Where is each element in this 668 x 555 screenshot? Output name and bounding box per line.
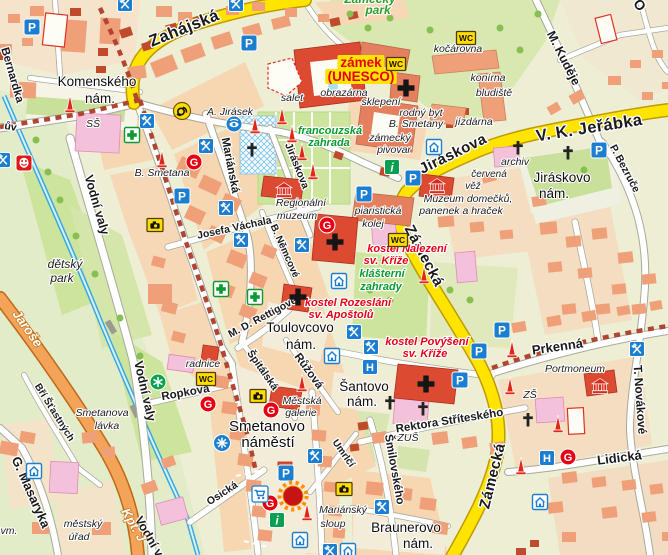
- camera-icon[interactable]: [147, 219, 163, 232]
- restaurant-icon[interactable]: [234, 233, 249, 248]
- place-label: Jiráskovo: [533, 170, 590, 185]
- tree: [137, 353, 144, 360]
- parking-icon[interactable]: [591, 142, 607, 158]
- building: [357, 421, 368, 430]
- tree: [33, 137, 40, 144]
- place-label: Smetanovo: [229, 418, 305, 435]
- wc-icon[interactable]: [457, 32, 476, 45]
- building: [662, 532, 668, 541]
- poi-label: věž: [465, 181, 481, 192]
- parking-icon[interactable]: [405, 170, 421, 186]
- city-map-canvas[interactable]: P WC H i G: [0, 0, 668, 555]
- castle-label: (UNESCO): [328, 69, 395, 84]
- building: [70, 8, 81, 16]
- restaurant-icon[interactable]: [0, 153, 11, 168]
- building: [419, 497, 437, 511]
- building: [632, 303, 647, 314]
- building: [148, 284, 172, 304]
- building: [318, 14, 329, 22]
- poi-label: kolej: [362, 218, 384, 230]
- building: [98, 48, 108, 56]
- restaurant-icon[interactable]: [118, 0, 133, 12]
- building: [49, 461, 79, 493]
- guesthouse-icon[interactable]: [341, 544, 356, 555]
- street-label: ův: [3, 120, 17, 134]
- tree: [497, 25, 504, 32]
- tree: [467, 297, 474, 304]
- restaurant-icon[interactable]: [347, 325, 362, 340]
- tree: [517, 47, 524, 54]
- post-office-icon[interactable]: [174, 103, 191, 120]
- building: [365, 481, 383, 496]
- information-icon[interactable]: [270, 513, 285, 528]
- place-label: Toulovcovo: [266, 320, 334, 335]
- tree: [347, 11, 354, 18]
- building: [617, 251, 633, 264]
- poi-label: radnice: [186, 358, 221, 370]
- poi-label: konírna: [470, 72, 505, 84]
- poi-label: červená: [471, 169, 507, 180]
- restaurant-icon[interactable]: [323, 544, 338, 555]
- building: [8, 14, 20, 23]
- place-label: nám.: [85, 91, 115, 106]
- building: [562, 532, 576, 542]
- building: [596, 303, 611, 314]
- building: [324, 481, 338, 492]
- supermarket-icon[interactable]: [252, 486, 268, 502]
- hotel-icon[interactable]: [363, 360, 378, 375]
- tree: [365, 25, 372, 32]
- building: [221, 401, 238, 415]
- place-label: Braunerovo: [371, 520, 441, 535]
- poi-label: ZŠ: [522, 388, 536, 401]
- building: [649, 483, 663, 495]
- place-label: nám.: [347, 394, 377, 409]
- parking-icon[interactable]: [278, 465, 294, 481]
- poi-label: panenek a hraček: [418, 205, 503, 217]
- building: [438, 215, 455, 227]
- tree: [73, 233, 80, 240]
- poi-label: Smetanova: [75, 407, 128, 419]
- poi-label: Muzeum domečků,: [424, 193, 513, 205]
- building: [252, 2, 265, 11]
- garden-label: zahrady: [359, 281, 402, 293]
- guesthouse-icon[interactable]: [427, 140, 442, 155]
- place-label: Šantovo: [339, 379, 389, 394]
- poi-label: salet: [281, 92, 304, 104]
- building: [470, 221, 485, 232]
- restaurant-icon[interactable]: [229, 0, 244, 12]
- poi-label: bludiště: [476, 87, 512, 99]
- restaurant-icon[interactable]: [308, 449, 323, 464]
- restaurant-icon[interactable]: [219, 201, 234, 216]
- poi-label: SŠ: [86, 117, 100, 130]
- guesthouse-icon[interactable]: [325, 349, 340, 364]
- building: [535, 397, 565, 423]
- poi-label: ZUŠ: [397, 431, 419, 444]
- camera-icon[interactable]: [250, 390, 266, 403]
- building: [461, 436, 477, 449]
- building: [548, 261, 563, 272]
- poi-label: dětský: [48, 257, 84, 271]
- parking-icon[interactable]: [24, 19, 40, 35]
- gallery-icon[interactable]: [186, 154, 202, 170]
- hotel-icon[interactable]: [540, 451, 555, 466]
- building: [312, 429, 327, 441]
- guesthouse-icon[interactable]: [332, 274, 347, 289]
- building: [500, 229, 514, 239]
- building: [350, 443, 360, 451]
- sight-label: sv. Kříže: [364, 255, 409, 267]
- poi-label: Městská: [282, 395, 321, 407]
- poi-label: B. Smetany: [389, 118, 444, 130]
- wc-icon[interactable]: [389, 234, 408, 247]
- building: [22, 38, 33, 46]
- poi-label: archiv: [501, 156, 530, 168]
- building: [30, 6, 44, 16]
- poi-label: piaristická: [354, 205, 402, 217]
- tree: [45, 169, 52, 176]
- parking-icon[interactable]: [356, 186, 372, 202]
- building: [662, 82, 668, 89]
- place-label: Komenského: [58, 74, 137, 89]
- building: [530, 540, 539, 547]
- information-icon[interactable]: [385, 160, 400, 175]
- poi-label: úřad: [68, 531, 90, 543]
- castle-label: zámek: [340, 55, 382, 70]
- tree: [427, 27, 434, 34]
- gallery-icon[interactable]: [319, 217, 335, 233]
- building: [547, 501, 563, 514]
- building: [102, 446, 116, 457]
- building: [565, 235, 581, 248]
- poi-label: Mariánský: [319, 504, 368, 516]
- camera-icon[interactable]: [336, 483, 352, 496]
- place-label: nám.: [403, 536, 433, 551]
- building: [630, 60, 641, 68]
- building: [561, 471, 577, 484]
- building: [652, 50, 663, 58]
- poi-label: vm.: [1, 525, 18, 537]
- sight-label: sv. Kříže: [403, 348, 448, 360]
- garden-label: francouzská: [298, 125, 362, 137]
- poi-label: městský: [64, 518, 103, 530]
- building: [591, 227, 607, 240]
- place-label: nám.: [286, 337, 316, 352]
- pharmacy-icon[interactable]: [214, 282, 229, 297]
- place-label: nám.: [539, 186, 569, 201]
- restaurant-icon[interactable]: [375, 500, 390, 515]
- fountain-icon[interactable]: [214, 435, 231, 452]
- parking-icon[interactable]: [494, 322, 510, 338]
- garden-label: zahrada: [307, 137, 350, 149]
- tree: [57, 197, 64, 204]
- wc-icon[interactable]: [387, 58, 406, 71]
- gallery-icon[interactable]: [263, 402, 279, 418]
- restaurant-icon[interactable]: [199, 139, 214, 154]
- building: [641, 511, 656, 523]
- tree: [447, 287, 454, 294]
- building: [285, 8, 297, 17]
- building: [539, 221, 557, 235]
- tree: [535, 11, 542, 18]
- building: [516, 548, 526, 555]
- park-label: park: [364, 3, 392, 17]
- poi-label: B. Smetana: [135, 167, 190, 179]
- building: [431, 431, 449, 445]
- building: [642, 92, 653, 100]
- building: [621, 479, 636, 491]
- theatre-icon[interactable]: [16, 155, 32, 171]
- building: [608, 76, 621, 85]
- restaurant-icon[interactable]: [140, 114, 155, 129]
- sight-eye-icon[interactable]: [226, 116, 242, 132]
- sight-label: sv. Apoštolů: [309, 309, 374, 321]
- pharmacy-icon[interactable]: [248, 290, 263, 305]
- restaurant-icon[interactable]: [364, 340, 379, 355]
- wc-icon[interactable]: [197, 373, 216, 386]
- star-icon[interactable]: [150, 374, 166, 390]
- building: [591, 476, 606, 488]
- building: [601, 506, 617, 519]
- poi-label: jízdárna: [453, 116, 493, 128]
- restaurant-icon[interactable]: [630, 342, 645, 357]
- poi-label: galerie: [285, 407, 317, 419]
- guesthouse-icon[interactable]: [27, 464, 42, 479]
- building: [642, 273, 657, 284]
- parking-icon[interactable]: [241, 35, 257, 51]
- gallery-icon[interactable]: [560, 449, 576, 465]
- building: [612, 283, 627, 294]
- tree: [117, 315, 124, 322]
- restaurant-icon[interactable]: [295, 238, 310, 253]
- building: [96, 66, 106, 73]
- building: [455, 251, 478, 283]
- poi-label: Portmoneum: [545, 363, 605, 375]
- poi-label: lávka: [95, 420, 120, 432]
- gallery-icon[interactable]: [200, 396, 216, 412]
- building: [578, 267, 593, 278]
- place-label: náměstí: [241, 434, 295, 451]
- poi-label: sloup: [320, 518, 345, 530]
- parking-icon[interactable]: [471, 343, 487, 359]
- poi-label: muzeum: [277, 210, 318, 222]
- poi-label: Regionální: [276, 197, 327, 209]
- parking-icon[interactable]: [452, 372, 468, 388]
- poi-label: A. Jirásek: [206, 106, 254, 118]
- poi-label: pivovar: [376, 144, 411, 156]
- building: [562, 303, 577, 314]
- sight-label: kostel Rozeslání: [305, 297, 393, 309]
- guesthouse-icon[interactable]: [533, 495, 548, 510]
- building: [156, 6, 172, 17]
- building: [82, 431, 98, 443]
- sight-label: kostel Povýšení: [385, 336, 470, 348]
- building: [257, 529, 272, 541]
- garden-label: klášterní: [359, 268, 406, 280]
- poi-label: zámecký: [368, 132, 411, 144]
- pharmacy-icon[interactable]: [125, 128, 140, 143]
- poi-label: sklepení: [361, 96, 401, 108]
- tree: [92, 271, 99, 278]
- poi-label: park: [49, 271, 74, 285]
- parking-icon[interactable]: [174, 188, 190, 204]
- guesthouse-icon[interactable]: [293, 533, 308, 548]
- map-viewport[interactable]: P WC H i G: [0, 0, 668, 555]
